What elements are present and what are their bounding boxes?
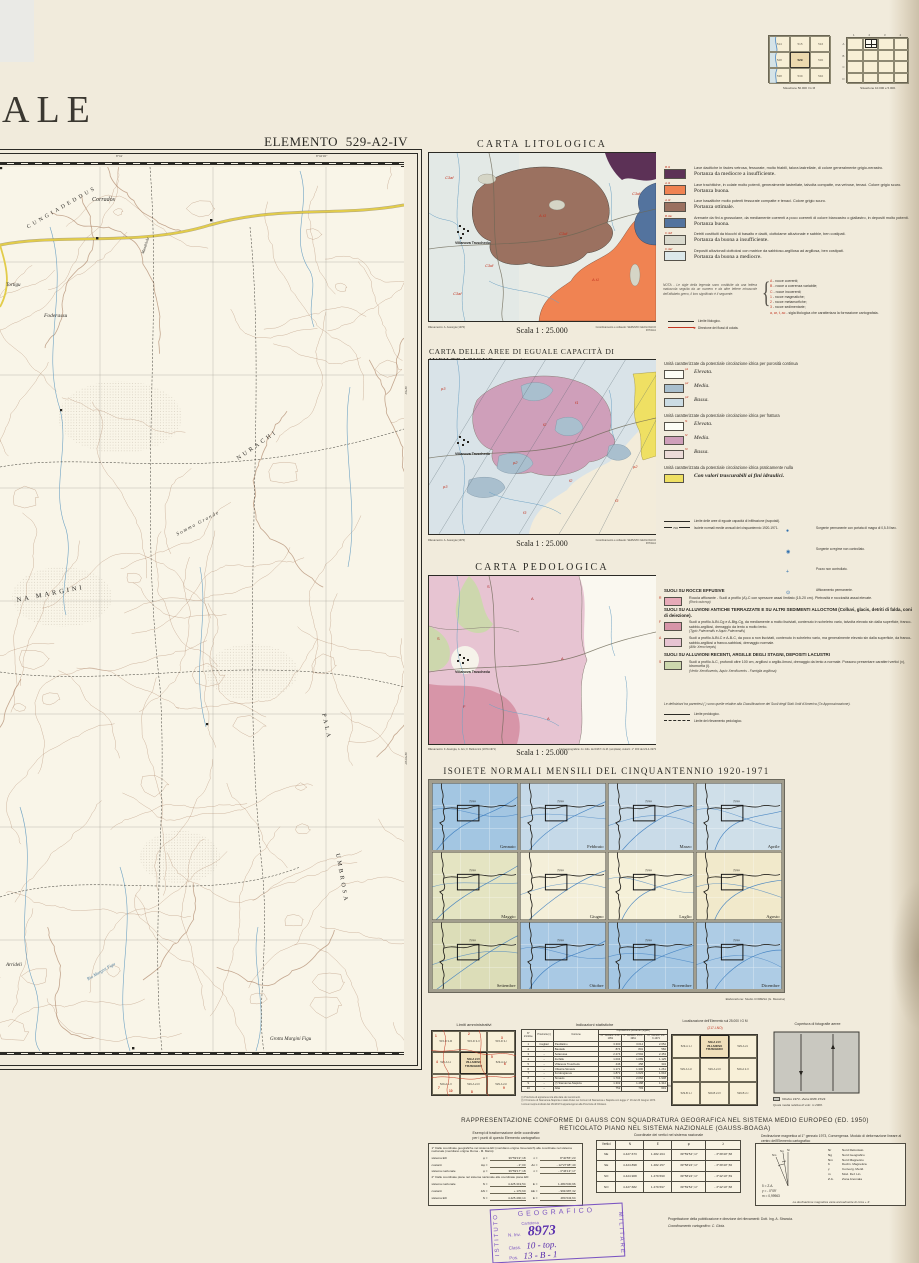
infiltrazione-heading: Unità caratterizzate da potenziale circo…: [664, 413, 916, 418]
map-place-label: UMBROSA: [334, 853, 349, 904]
map-place-label: NURACHI: [236, 429, 279, 462]
isoiete-graphic: Tirso: [432, 783, 518, 851]
localizzazione-grid: 529-A 1-I529-A 2-IVVILLANOVATRUSCHEDU529…: [671, 1034, 758, 1106]
vertici-table-wrap: VerticiNEφλNE4.427.6731.482.16439°59'54"…: [596, 1140, 741, 1193]
situazione-10-col-header: 3: [884, 33, 886, 37]
esempi-symbol: ΔE =: [526, 1189, 540, 1193]
table-header-cell: X° Censim. 15-X-1961: [622, 1034, 645, 1042]
litologica-symbol-row: ▸Direzione dei flussi di colata.: [668, 326, 868, 330]
grid-cell-line: 529-B 2-I: [737, 1092, 748, 1096]
infiltrazione-label: Bassa.: [694, 449, 916, 455]
legend-entry: B.3arArenarie da fini a grossolane, da m…: [664, 216, 918, 228]
legend-text: Depositi alluvionali ciottolosi con matr…: [694, 249, 918, 260]
esempi-row-label: sistema nazionale: [432, 1169, 476, 1173]
legend-description: Arenarie da fini a grossolane, da mediam…: [694, 216, 918, 221]
edge-coordinate-label: 39°59': [404, 386, 408, 394]
litologica-unit-label: C3dl: [559, 231, 567, 236]
table-header-cell: N: [616, 1141, 644, 1150]
vertici-table: VerticiNEφλNE4.427.6731.482.16439°59'54"…: [596, 1140, 741, 1193]
limiti-number: 9: [503, 1086, 505, 1090]
legend-description: Lave trachitiche, in colate molto potent…: [694, 183, 918, 188]
legend-code: C.3af: [665, 247, 672, 251]
pedologica-code: S: [659, 660, 661, 664]
infiltrazione-swatch: [664, 436, 684, 445]
legend-code: C.3dl: [665, 231, 672, 235]
table-header-cell: IX° Censim. 4-XI-1951: [599, 1034, 622, 1042]
infiltrazione-label: Media.: [694, 383, 916, 389]
pedologica-entry: SSuoli a profilo A-C, profondi oltre 100…: [664, 660, 916, 673]
infiltrazione-code: p1: [685, 367, 688, 371]
table-cell: 39°58'24",17: [672, 1160, 706, 1171]
esempi-rows-2: sistema nazionaleN =4.425.319,54E =1.480…: [432, 1182, 580, 1200]
esempi-value: 4.425.490,14: [490, 1196, 526, 1201]
pedologica-code: A: [659, 636, 661, 640]
declinazione-key: Z.A.: [828, 1177, 842, 1182]
legend-text: Lave dacitiche in facies vetrosa, fessur…: [694, 166, 918, 177]
grid-cell-line: TRUSCHEDU: [706, 1048, 723, 1052]
infiltrazione-symbol-label: Sorgente a regime non controllato.: [816, 547, 865, 551]
declinazione-legend: NrNord ReticolatoNgNord GeograficoNmNord…: [828, 1148, 904, 1181]
classification-key: 2: [770, 300, 772, 304]
line-icon: [668, 321, 694, 322]
table-cell: SO: [597, 1171, 616, 1182]
table-cell: 4.424.908: [616, 1171, 644, 1182]
esempi-row-label: sistema ED: [432, 1156, 476, 1160]
table-cell: 793: [622, 1087, 645, 1092]
table-header-cell: Comune: [553, 1030, 599, 1042]
isoiete-mini-map: Tirso Novembre: [608, 922, 694, 990]
scan-corner-background: [0, 0, 34, 62]
infiltrazione-code: p3: [685, 395, 688, 399]
esempi-symbol: λ =: [526, 1156, 540, 1160]
esempi-symbol: N =: [476, 1196, 490, 1200]
classification-key: 1: [770, 295, 772, 299]
svg-text:Tirso: Tirso: [732, 868, 739, 872]
limiti-number: 3: [501, 1036, 503, 1040]
esempi-symbol: E =: [526, 1182, 540, 1186]
table-cell: NO: [597, 1182, 616, 1193]
legend-portanza: Portanza da buona a mediocre.: [694, 254, 918, 260]
legend-description: Lave basaltiche molto potenti fessurate …: [694, 199, 918, 204]
esempi-title-1: Esempi di trasformazione delle coordinat…: [436, 1131, 576, 1135]
svg-text:Tirso: Tirso: [644, 938, 651, 942]
litologica-unit-label: A.t1: [592, 277, 599, 282]
isoiete-mini-map: Tirso Ottobre: [520, 922, 606, 990]
grid-cell-line: 529-A 2-II: [737, 1068, 749, 1072]
situazione-10-cell: [878, 50, 894, 62]
table-header-cell: Provincia (¹): [535, 1030, 553, 1042]
isoiete-mini-map: Tirso Febbraio: [520, 783, 606, 851]
table-cell: Allai: [553, 1087, 599, 1092]
grid-cell: 529-B 2-I: [729, 1082, 757, 1105]
infiltrazione-symbol-label: Sorgente permanente con portata di magra…: [816, 526, 897, 530]
table-row: 10–Allai752793601: [522, 1087, 668, 1092]
pedologica-swatch: [664, 597, 682, 606]
map-place-label: Tortigu: [6, 283, 21, 288]
isoiete-graphic: Tirso: [608, 852, 694, 920]
table-cell: 4.427.682: [616, 1182, 644, 1193]
statistiche-table: N° d'ordineProvincia (¹)ComunePopolazion…: [521, 1029, 668, 1092]
classification-key: A: [770, 279, 772, 283]
litologica-unit-label: C3dl: [632, 191, 640, 196]
infiltrazione-label: Bassa.: [694, 397, 916, 403]
infiltrazione-unit-label: p2: [633, 464, 637, 469]
isoiete-mini-map: Tirso Luglio: [608, 852, 694, 920]
situazione-10-cell: [878, 73, 894, 85]
pedologica-symbol-label: Limite pedologico.: [694, 712, 720, 716]
map-place-label: Riu Margini Figu: [86, 961, 116, 981]
spring2-icon: ◉: [786, 540, 812, 558]
infiltrazione-unit-label: p3: [441, 386, 445, 391]
litologica-unit-label: C3af: [453, 291, 461, 296]
map-place-label: Foderassu: [44, 313, 67, 319]
limiti-number: 7: [438, 1086, 440, 1090]
pedologica-description: Suoli a profilo A-Bt-Cg e A-Btg-Cg, da m…: [689, 620, 916, 629]
isoiete-title: ISOIETE NORMALI MENSILI DEL CINQUANTENNI…: [428, 766, 785, 776]
declinazione-legend-row: Z.A.Zona Anomala: [828, 1177, 904, 1182]
table-header-cell: E: [644, 1141, 672, 1150]
svg-text:Tirso: Tirso: [644, 868, 651, 872]
litologica-symbol-label: Direzione dei flussi di colata.: [698, 326, 738, 330]
situazione-10-cell: [847, 50, 863, 62]
infiltrazione-unit-label: p2: [513, 460, 517, 465]
isoiete-month-label: Marzo: [680, 844, 692, 849]
legend-entry: C.3afDepositi alluvionali ciottolosi con…: [664, 249, 918, 261]
isoiete-grid: Tirso Gennaio Tirso Febbraio Tirso Marzo: [428, 779, 785, 993]
isoiete-month-label: Aprile: [768, 844, 780, 849]
situazione-10-row-header: C: [843, 65, 845, 69]
dashdot-icon: [664, 720, 690, 721]
infiltrazione-swatch: [664, 474, 684, 483]
line-icon: [664, 714, 690, 715]
situazione-10000-caption: Situazione 10.000 e 5.000.: [840, 86, 916, 90]
statistiche-table-wrap: N° d'ordineProvincia (¹)ComunePopolazion…: [521, 1029, 668, 1092]
pedologica-taxonomy: (Vertic Xerofluvents, Aquic Xerofluvents…: [689, 669, 916, 673]
pedologica-entry: RRoccia affiorante - Suoli a profilo (A)…: [664, 596, 916, 605]
table-cell: 10: [522, 1087, 536, 1092]
stamp-pos-value: 13 - B - 1: [523, 1249, 557, 1261]
classification-key: 3: [770, 305, 772, 309]
edge-coordinate-label: 8°41': [116, 154, 123, 158]
stamp-right-word: MILITARE: [617, 1212, 625, 1255]
legend-portanza: Portanza buona.: [694, 188, 918, 194]
isoiete-graphic: Tirso: [696, 922, 782, 990]
infiltrazione-unit-label: f3: [523, 510, 526, 515]
declinazione-heading: Declinazione magnetica al 1° gennaio 197…: [761, 1134, 909, 1143]
table-cell: 1.482.164: [644, 1149, 672, 1160]
town-label: Villanova Truschedu: [455, 670, 490, 674]
grid-cell: 529-A 1-II: [672, 1058, 700, 1081]
situazione-10-cell: [863, 73, 879, 85]
legend-swatch: [664, 218, 686, 228]
infiltrazione-entry: f1Elevata.: [664, 421, 916, 432]
legend-text: Lave basaltiche molto potenti fessurate …: [694, 199, 918, 210]
esempi-value: 39°59'19",18: [490, 1156, 526, 1161]
situazione-10-cell: [894, 61, 910, 73]
stamp-pos-label: Pos.: [509, 1255, 518, 1260]
localizzazione-title: Localizzazione dell'Elemento sul 25.000 …: [660, 1019, 770, 1023]
declinazione-constant: m = 0,99963: [762, 1194, 822, 1199]
table-cell: 39°58'24",17: [672, 1171, 706, 1182]
grid-cell-line: 529-A 2-I: [737, 1045, 748, 1049]
table-cell: - 3°39'40",58: [706, 1149, 741, 1160]
esempi-value: - 999.987,32: [540, 1189, 576, 1194]
legend-portanza: Portanza da mediocre a insufficiente.: [694, 171, 918, 177]
table-cell: - 3°42'10",58: [706, 1182, 741, 1193]
esempi-symbol: ΔN =: [476, 1189, 490, 1193]
esempi-rows-1: sistema EDφ =39°59'19",18λ =8°40'55",23c…: [432, 1156, 580, 1174]
map-place-label: Corradòs: [92, 197, 115, 203]
infiltrazione-symbol-label: Isoiete normali medie annuali del cinqua…: [694, 526, 778, 530]
limiti-number: 10: [449, 1089, 453, 1093]
situazione-10-row-header: B: [843, 54, 845, 58]
litologica-symbol-row: Limite litologico.: [668, 319, 868, 323]
table-header-cell: λ: [706, 1141, 741, 1150]
svg-text:Tirso: Tirso: [468, 868, 475, 872]
svg-text:Tirso: Tirso: [556, 868, 563, 872]
publication-credit-2: Coordinamento cartografico: C. Gioia.: [668, 1224, 888, 1228]
esempi-value: + 170,60: [490, 1189, 526, 1194]
esempi-title-2: per i punti di questo Elemento cartograf…: [436, 1136, 576, 1140]
esempi-value: 1.480.530,96: [540, 1182, 576, 1187]
infiltrazione-entry: p3Bassa.: [664, 397, 916, 408]
flight-lines-graphic: [773, 1031, 860, 1094]
edge-coordinate-label: 39°58'30'': [404, 752, 408, 765]
plus-icon: +: [786, 560, 812, 578]
stamp-top-word: GEOGRAFICO: [491, 1206, 622, 1220]
table-header-row: VerticiNEφλ: [597, 1141, 741, 1150]
paper-curl-shadow: [891, 880, 919, 1030]
localizzazione-code: (217-I-NO): [660, 1026, 770, 1030]
situazione-10-col-header: 1: [853, 33, 855, 37]
infiltrazione-swatch: [664, 398, 684, 407]
litologica-map: C3afA.t3C3dlA.t1C3dlC3afC3dl Villanova T…: [428, 152, 656, 322]
stamp-inv-label: N. Inv.: [508, 1232, 521, 1238]
situazione-50-cell: 529: [790, 52, 811, 68]
isoiete-month-label: Giugno: [590, 914, 604, 919]
isoiete-graphic: Tirso: [520, 783, 606, 851]
situazione-10-cell: [894, 50, 910, 62]
svg-text:Tirso: Tirso: [556, 938, 563, 942]
infiltrazione-unit-label: f2: [569, 478, 572, 483]
statistiche-footnotes: (¹) Provincia di appartenenza alla data …: [521, 1096, 673, 1106]
limiti-title: Limiti amministrativi: [424, 1022, 524, 1027]
table-cell: - 3°42'10",59: [706, 1171, 741, 1182]
situazione-10-col-header: 2: [869, 33, 871, 37]
legend-entry: A.t3Lave basaltiche molto potenti fessur…: [664, 199, 918, 211]
litologica-coordinamento: Coordinamento e collaudo: SERVIZIO GEOLO…: [588, 326, 656, 333]
classification-item: a, ar, t, ac - sigla litologica che cara…: [770, 311, 918, 316]
table-cell: - 3°39'40",56: [706, 1160, 741, 1171]
situazione-50-cell: 516: [810, 36, 831, 52]
esempi-paragraph-2: 2° Dalle coordinate piane nel sistema na…: [432, 1176, 580, 1180]
limiti-number: 8: [471, 1090, 473, 1094]
infiltrazione-unit-label: f3: [615, 498, 618, 503]
pedologica-unit-label: S: [487, 584, 490, 589]
infiltrazione-unit-label: f1: [575, 400, 578, 405]
legend-swatch: [664, 202, 686, 212]
copertura-caption-1: Ottobre 1973 - Zeiss RMK 15/23.: [773, 1097, 883, 1101]
infiltrazione-heading: Unità caratterizzata da potenziale circo…: [664, 465, 916, 470]
esempi-row: sistema EDφ =39°59'19",18λ =8°40'55",23: [432, 1156, 580, 1161]
legend-text: Detriti costituiti da blocchi di basalto…: [694, 232, 918, 243]
infiltrazione-swatch: [664, 370, 684, 379]
infiltrazione-swatch: [664, 384, 684, 393]
pedologica-label-layer: SASAFA: [429, 576, 655, 744]
situazione-50-cell: 538: [769, 68, 790, 84]
infiltrazione-symbol-row: 700Isoiete normali medie annuali del cin…: [664, 526, 786, 530]
isoiete-month-label: Agosto: [766, 914, 779, 919]
situazione-10-cell: [878, 61, 894, 73]
situazione-10-cell: [894, 38, 910, 50]
library-stamp: GEOGRAFICO ISTITUTO MILITARE Cartoteca N…: [490, 1203, 626, 1263]
pedologica-unit-label: F: [463, 704, 465, 709]
table-cell: NE: [597, 1149, 616, 1160]
situazione-10000-marker: [865, 39, 877, 48]
svg-text:Ng: Ng: [780, 1149, 784, 1153]
north-arrows-diagram: NrNgNm: [764, 1148, 810, 1188]
pedologica-swatch: [664, 638, 682, 647]
esempi-symbol: φ =: [476, 1169, 490, 1173]
situazione-10-cell: [847, 61, 863, 73]
isoiete-graphic: Tirso: [520, 852, 606, 920]
spring-icon: ●: [786, 519, 812, 537]
table-header-cell: Vertici: [597, 1141, 616, 1150]
litologica-legend: B.t1Lave dacitiche in facies vetrosa, fe…: [664, 166, 918, 265]
copertura-caption-2: Quota media relativa di volo: m 2000.: [773, 1103, 883, 1107]
litologica-unit-label: A.t3: [539, 213, 546, 218]
legend-code: A.t1: [665, 181, 670, 185]
legend-portanza: Portanza buona.: [694, 221, 918, 227]
infiltrazione-code: f2: [685, 433, 688, 437]
pedologica-map: SASAFA Villanova Truschedu: [428, 575, 656, 745]
town-label: Villanova Truschedu: [455, 241, 490, 245]
pedologica-unit-label: A: [531, 596, 534, 601]
isoiete-month-label: Dicembre: [761, 983, 779, 988]
infiltrazione-label: Media.: [694, 435, 916, 441]
footnote-line: I comuni sopra indicati dal 16/4/1974 ap…: [521, 1103, 673, 1106]
isoiete-month-label: Settembre: [497, 983, 516, 988]
table-cell: SE: [597, 1160, 616, 1171]
map-place-label: Mandriola: [140, 237, 150, 255]
pedologica-fonte: Fonte topografica: riv. ridis. del 1967 …: [556, 748, 656, 751]
esempi-row-label: costanti: [432, 1189, 476, 1193]
legend-portanza: Portanza da buona a insufficiente.: [694, 237, 918, 243]
situazione-50-cell: 540: [810, 68, 831, 84]
grid-cell-line: 529-A 2-III: [708, 1068, 720, 1072]
classification-key: C: [770, 290, 773, 294]
copertura-swatch: [773, 1097, 780, 1101]
esempi-symbol: N =: [476, 1182, 490, 1186]
infiltrazione-entry: f2Media.: [664, 435, 916, 446]
declinazione-values: δ = Z.A.γ = - 0°09'm = 0,99963: [762, 1184, 822, 1198]
situazione-50-cell: 514: [769, 36, 790, 52]
isoiete-credit: Elaborazione: Studio COMESA (G. Messina): [600, 997, 785, 1001]
legend-code: A.t3: [665, 198, 670, 202]
isoiete-graphic: Tirso: [608, 922, 694, 990]
infiltrazione-label: Elevata.: [694, 421, 916, 427]
litologica-symbols: Limite litologico.▸Direzione dei flussi …: [668, 319, 868, 332]
isoiete-mini-map: Tirso Giugno: [520, 852, 606, 920]
situazione-50000-grid: 514515516528529530538539540: [769, 36, 831, 84]
grid-cell: 529-B 2-IV: [700, 1082, 728, 1105]
esempi-value: 39°59'17",18: [490, 1169, 526, 1174]
table-row: SE4.424.8981.482.15739°58'24",17- 3°39'4…: [597, 1160, 741, 1171]
limiti-amministrativi: 515-D 3-III515-D 3-II515-D 3-I529-A 1-I5…: [431, 1030, 516, 1096]
classification-key: B: [770, 284, 772, 288]
pedologica-description: Suoli a profilo A-C, profondi oltre 100 …: [689, 660, 916, 669]
table-cell: 601: [645, 1087, 668, 1092]
svg-text:Nm: Nm: [772, 1153, 777, 1157]
table-header-cell: N° d'ordine: [522, 1030, 536, 1042]
esempi-symbol: Δφ =: [476, 1163, 490, 1167]
pedologica-description: Suoli a profilo A-Bt-C e A-B-C, da poco …: [689, 636, 916, 645]
litologica-unit-label: C3af: [445, 175, 453, 180]
isoiete-mini-map: Tirso Maggio: [432, 852, 518, 920]
isoiete-graphic: Tirso: [608, 783, 694, 851]
table-header-cell: XI° Censim. 24-X-1971: [645, 1034, 668, 1042]
isoiete-mini-map: Tirso Dicembre: [696, 922, 782, 990]
pedologica-code: F: [659, 620, 661, 624]
legend-text: Arenarie da fini a grossolane, da mediam…: [694, 216, 918, 227]
situazione-50000-caption: Situazione 50.000 I G M: [757, 86, 841, 90]
esempi-row-label: costanti: [432, 1163, 476, 1167]
pedologica-symbol-label: Limite del rilevamento pedologico.: [694, 719, 742, 723]
limiti-number: 1: [435, 1034, 437, 1038]
esempi-box: 1° Dalle coordinate geografiche nel sist…: [428, 1143, 583, 1206]
esempi-row: sistema nazionaleφ =39°59'17",18λ =- 3°4…: [432, 1169, 580, 1174]
pedologica-unit-label: A: [547, 716, 550, 721]
limiti-number: 5: [491, 1055, 493, 1059]
table-row: NO4.427.6821.479.59739°59'54",17- 3°42'1…: [597, 1182, 741, 1193]
infiltrazione-map: p3f1f2p2f2p3f3f3p2 Villanova Truschedu: [428, 359, 656, 535]
pedologica-swatch: [664, 661, 682, 670]
svg-text:Nr: Nr: [787, 1148, 790, 1152]
legend-entry: C.3dlDetriti costituiti da blocchi di ba…: [664, 232, 918, 244]
legend-text: Lave trachitiche, in colate molto potent…: [694, 183, 918, 194]
pedologica-text: Suoli a profilo A-Bt-C e A-B-C, da poco …: [689, 636, 916, 649]
limiti-number: 4: [436, 1060, 438, 1064]
situazione-10-cell: [894, 73, 910, 85]
situazione-10-cell: [847, 38, 863, 50]
litologica-nota: NOTA - Le sigle della legenda sono costi…: [663, 283, 757, 296]
declinazione-value: Zona Anomala: [842, 1177, 862, 1182]
table-cell: 752: [599, 1087, 622, 1092]
infiltrazione-entry: Con valori trascurabili ai fini idraulic…: [664, 473, 916, 484]
pedologica-taxonomy: (Typic Palexeralfs e Aquic Palexeralfs): [689, 629, 916, 633]
esempi-row: costantiΔφ =- 2",00Δλ =- 12°27'08",40: [432, 1163, 580, 1168]
infiltrazione-code: f3: [685, 447, 688, 451]
situazione-10-row-header: D: [843, 77, 845, 81]
esempi-row-label: sistema ED: [432, 1196, 476, 1200]
situazione-10-row-header: A: [843, 42, 845, 46]
esempi-paragraph-1: 1° Dalle coordinate geografiche nel sist…: [432, 1147, 580, 1155]
isoiete-graphic: Tirso: [696, 852, 782, 920]
infiltrazione-swatch: [664, 450, 684, 459]
town-label: Villanova Truschedu: [455, 452, 490, 456]
edge-coordinate-label: 8°42'30'': [316, 154, 327, 158]
infiltrazione-label: Con valori trascurabili ai fini idraulic…: [694, 473, 916, 479]
pedologica-symbol-row: Limite pedologico.: [664, 712, 914, 716]
pedologica-taxonomy: (Alfic Xerochrepts): [689, 645, 916, 649]
esempi-row: sistema EDN =4.425.490,14E =480.543,64: [432, 1196, 580, 1201]
isoiete-month-label: Maggio: [501, 914, 515, 919]
classification-key: a, ar, t, ac: [770, 311, 785, 315]
grid-cell: 529-A 2-I: [729, 1035, 757, 1058]
gauss-heading-1: RAPPRESENTAZIONE CONFORME DI GAUSS CON S…: [430, 1117, 900, 1124]
isoiete-month-label: Novembre: [672, 983, 691, 988]
limiti-numbers-layer: 12345678910: [431, 1030, 516, 1096]
